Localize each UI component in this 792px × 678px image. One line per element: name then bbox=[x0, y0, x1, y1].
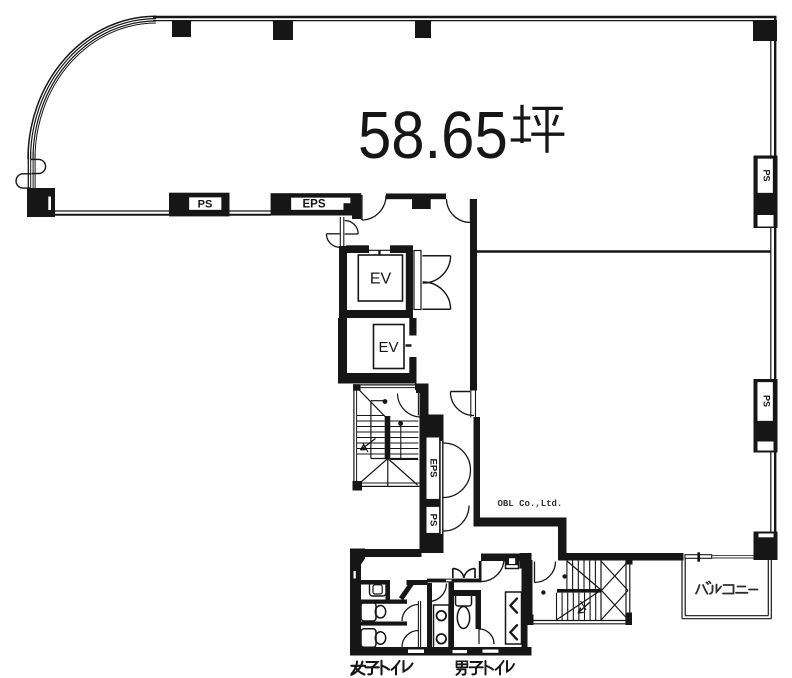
svg-text:PS: PS bbox=[762, 169, 772, 181]
svg-text:EPS: EPS bbox=[428, 458, 439, 477]
svg-text:EV: EV bbox=[370, 271, 392, 288]
svg-text:PS: PS bbox=[198, 199, 213, 211]
svg-text:EPS: EPS bbox=[302, 199, 325, 211]
svg-text:EV: EV bbox=[378, 339, 398, 356]
svg-text:PS: PS bbox=[428, 514, 439, 527]
svg-text:58.65: 58.65 bbox=[358, 99, 508, 173]
svg-text:PS: PS bbox=[762, 395, 772, 407]
svg-text:OBL Co.,Ltd.: OBL Co.,Ltd. bbox=[498, 499, 563, 509]
